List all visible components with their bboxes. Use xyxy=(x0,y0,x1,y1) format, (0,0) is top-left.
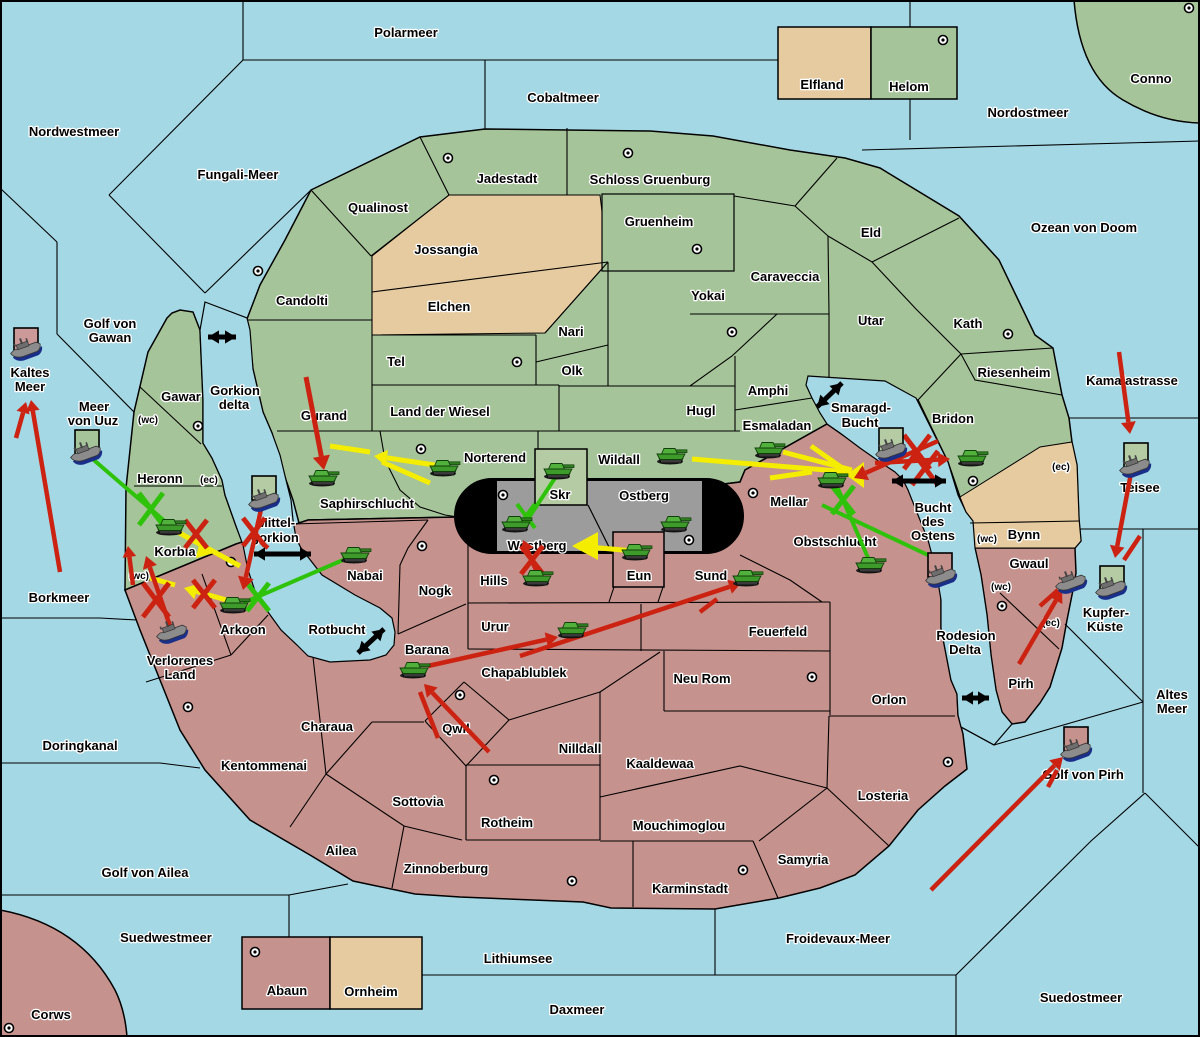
svg-text:Arkoon: Arkoon xyxy=(220,622,266,637)
svg-text:Golf von Ailea: Golf von Ailea xyxy=(102,865,190,880)
svg-text:Bridon: Bridon xyxy=(932,411,974,426)
svg-text:Kaltes: Kaltes xyxy=(10,365,49,380)
svg-text:(ec): (ec) xyxy=(200,475,218,486)
svg-text:Rotheim: Rotheim xyxy=(481,815,533,830)
svg-text:Hills: Hills xyxy=(480,573,507,588)
svg-text:Amphi: Amphi xyxy=(748,383,788,398)
svg-text:Zinnoberburg: Zinnoberburg xyxy=(404,861,489,876)
svg-text:Ornheim: Ornheim xyxy=(344,984,397,999)
svg-text:Elfland: Elfland xyxy=(800,77,843,92)
svg-text:Nogk: Nogk xyxy=(419,583,452,598)
svg-text:Borkmeer: Borkmeer xyxy=(29,590,90,605)
svg-text:Kaaldewaa: Kaaldewaa xyxy=(626,756,694,771)
svg-text:Bucht: Bucht xyxy=(915,500,953,515)
svg-text:Gorkion: Gorkion xyxy=(210,383,260,398)
svg-text:Suedwestmeer: Suedwestmeer xyxy=(120,930,212,945)
svg-text:Qualinost: Qualinost xyxy=(348,200,409,215)
svg-text:Ozean von Doom: Ozean von Doom xyxy=(1031,220,1137,235)
svg-text:Sottovia: Sottovia xyxy=(392,794,444,809)
svg-text:Conno: Conno xyxy=(1130,71,1171,86)
svg-text:delta: delta xyxy=(219,397,250,412)
svg-text:Tel: Tel xyxy=(387,354,405,369)
svg-text:Nabai: Nabai xyxy=(347,568,382,583)
svg-text:Cobaltmeer: Cobaltmeer xyxy=(527,90,599,105)
svg-text:Küste: Küste xyxy=(1087,619,1123,634)
svg-text:Ailea: Ailea xyxy=(325,843,357,858)
svg-text:Mouchimoglou: Mouchimoglou xyxy=(633,818,725,833)
svg-text:Meer: Meer xyxy=(79,399,109,414)
svg-text:(wc): (wc) xyxy=(977,534,997,545)
svg-text:Delta: Delta xyxy=(949,642,982,657)
svg-text:Nilldall: Nilldall xyxy=(559,741,602,756)
svg-text:Daxmeer: Daxmeer xyxy=(550,1002,605,1017)
svg-text:Ostens: Ostens xyxy=(911,528,955,543)
svg-text:Jadestadt: Jadestadt xyxy=(477,171,538,186)
svg-text:Eun: Eun xyxy=(627,568,652,583)
svg-text:(ec): (ec) xyxy=(1052,462,1070,473)
svg-text:Doringkanal: Doringkanal xyxy=(42,738,117,753)
svg-text:(wc): (wc) xyxy=(991,582,1011,593)
svg-text:Jossangia: Jossangia xyxy=(414,242,478,257)
svg-text:Pirh: Pirh xyxy=(1008,676,1033,691)
svg-text:Elchen: Elchen xyxy=(428,299,471,314)
svg-text:Saphirschlucht: Saphirschlucht xyxy=(320,496,415,511)
svg-text:Gruenheim: Gruenheim xyxy=(625,214,694,229)
svg-text:Abaun: Abaun xyxy=(267,983,308,998)
svg-text:Helom: Helom xyxy=(889,79,929,94)
svg-text:Froidevaux-Meer: Froidevaux-Meer xyxy=(786,931,890,946)
svg-text:Orlon: Orlon xyxy=(872,692,907,707)
svg-text:Verlorenes: Verlorenes xyxy=(147,653,214,668)
svg-text:Rotbucht: Rotbucht xyxy=(308,622,366,637)
svg-text:Land: Land xyxy=(164,667,195,682)
svg-text:Caraveccia: Caraveccia xyxy=(751,269,820,284)
svg-text:Kath: Kath xyxy=(954,316,983,331)
svg-text:Chapablublek: Chapablublek xyxy=(481,665,567,680)
svg-text:(wc): (wc) xyxy=(138,415,158,426)
svg-text:Land der Wiesel: Land der Wiesel xyxy=(390,404,490,419)
svg-text:Gwaul: Gwaul xyxy=(1009,556,1048,571)
svg-text:Esmaladan: Esmaladan xyxy=(743,418,812,433)
svg-text:Lithiumsee: Lithiumsee xyxy=(484,951,553,966)
svg-text:Korbia: Korbia xyxy=(154,544,196,559)
svg-text:Gawar: Gawar xyxy=(161,389,201,404)
svg-text:Suedostmeer: Suedostmeer xyxy=(1040,990,1122,1005)
svg-text:Golf von: Golf von xyxy=(84,316,137,331)
svg-text:Ostberg: Ostberg xyxy=(619,488,669,503)
svg-text:Schloss Gruenburg: Schloss Gruenburg xyxy=(590,172,711,187)
svg-text:Barana: Barana xyxy=(405,642,450,657)
svg-text:Olk: Olk xyxy=(562,363,584,378)
svg-text:Samyria: Samyria xyxy=(778,852,829,867)
svg-text:Eld: Eld xyxy=(861,225,881,240)
svg-text:Altes: Altes xyxy=(1156,687,1188,702)
svg-text:Corws: Corws xyxy=(31,1007,71,1022)
svg-text:Polarmeer: Polarmeer xyxy=(374,25,438,40)
svg-text:Skr: Skr xyxy=(550,487,571,502)
svg-text:Sund: Sund xyxy=(695,568,728,583)
svg-text:Yokai: Yokai xyxy=(691,288,725,303)
svg-text:Kupfer-: Kupfer- xyxy=(1083,605,1129,620)
svg-text:Bynn: Bynn xyxy=(1008,527,1041,542)
svg-text:Urur: Urur xyxy=(481,619,508,634)
svg-text:Candolti: Candolti xyxy=(276,293,328,308)
svg-text:Norterend: Norterend xyxy=(464,450,526,465)
svg-text:Mellar: Mellar xyxy=(770,494,808,509)
svg-text:Heronn: Heronn xyxy=(137,471,183,486)
svg-text:Rodesion: Rodesion xyxy=(936,628,995,643)
svg-text:Bucht: Bucht xyxy=(842,415,880,430)
svg-text:Utar: Utar xyxy=(858,313,884,328)
svg-text:Fungali-Meer: Fungali-Meer xyxy=(198,167,279,182)
svg-text:Neu Rom: Neu Rom xyxy=(673,671,730,686)
svg-text:Wildall: Wildall xyxy=(598,452,640,467)
svg-text:Smaragd-: Smaragd- xyxy=(831,400,891,415)
svg-text:des: des xyxy=(922,514,944,529)
svg-text:Nordwestmeer: Nordwestmeer xyxy=(29,124,119,139)
svg-text:Nari: Nari xyxy=(558,324,583,339)
svg-text:Kentommenai: Kentommenai xyxy=(221,758,307,773)
svg-text:von Uuz: von Uuz xyxy=(68,413,119,428)
svg-text:Nordostmeer: Nordostmeer xyxy=(988,105,1069,120)
svg-text:Meer: Meer xyxy=(15,379,45,394)
svg-text:Karminstadt: Karminstadt xyxy=(652,881,729,896)
svg-text:Feuerfeld: Feuerfeld xyxy=(749,624,808,639)
svg-text:Kamalastrasse: Kamalastrasse xyxy=(1086,373,1178,388)
svg-text:Meer: Meer xyxy=(1157,701,1187,716)
svg-text:Gawan: Gawan xyxy=(89,330,132,345)
svg-text:Charaua: Charaua xyxy=(301,719,354,734)
svg-text:Hugl: Hugl xyxy=(687,403,716,418)
svg-text:Riesenheim: Riesenheim xyxy=(978,365,1051,380)
svg-text:Gurand: Gurand xyxy=(301,408,347,423)
svg-text:Losteria: Losteria xyxy=(858,788,909,803)
